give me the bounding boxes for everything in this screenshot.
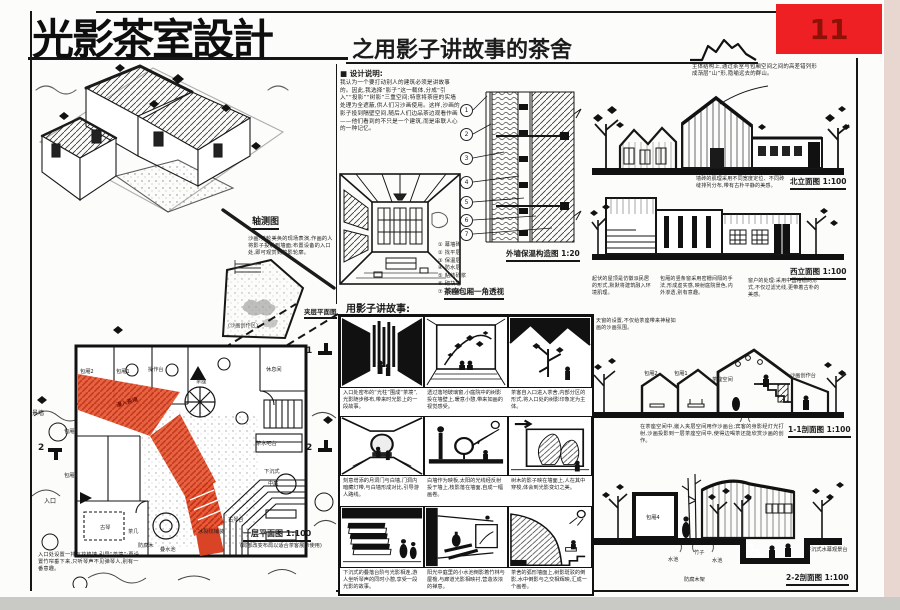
section-11-room-label: 茶座空间	[712, 376, 733, 383]
story-caption: 白墙作为映板,太阳的光线经反射投于墙上,枝影落在墙面,自成一幅画卷。	[424, 476, 508, 506]
story-sketch-reflection-diagram	[425, 417, 507, 475]
west-elevation-drawing	[590, 190, 856, 266]
plan-room-label: 包厢3	[64, 428, 78, 435]
section-22-label-item: 竹子	[694, 549, 704, 556]
legend-item: ⑦ 内饰面	[438, 289, 502, 297]
section-mark-2-left: 2	[38, 443, 44, 453]
story-caption: 树木的影子映在墙面上,人在其中穿梭,体会到光影变幻之美。	[508, 476, 592, 506]
section-11-room-label: 沙画创作台	[790, 372, 820, 379]
mountain-sketch-icon	[688, 36, 758, 62]
sun-icon	[491, 421, 499, 428]
scan-edge-bottom	[0, 597, 900, 610]
north-elevation-label: 北立面图 1:100	[790, 176, 846, 190]
legend-item: ② 找平层	[438, 250, 502, 258]
plan-side-label: 入口	[44, 496, 56, 505]
detail-callout: 2	[460, 128, 473, 141]
section-11-note-bottom: 在茶座空间中,嵌入夹层空间用作沙画台;宾客的身影经灯光打射,沙画投影到一层茶座空…	[640, 424, 786, 446]
design-notes-body: 我认为一个要打动别人的建筑必须是讲故事的。因此,我选择“影子”这一载体,分成“引…	[340, 80, 460, 134]
story-caption: 刻意增添的月洞门与白墙,门洞内暗藏灯带,与白墙形成对比,引导游人路线。	[340, 476, 424, 506]
section-mark-1: 1	[306, 346, 312, 356]
story-caption: 透过落地玻璃窗,小庭院中的树影投在墙壁上,暖意小憩,带来如画的视觉感受。	[424, 388, 508, 416]
story-caption: 茶舍的弧形墙面上,树影斑驳的倒影,水中倒影与之交相辉映,汇成一个画卷。	[508, 568, 592, 594]
story-sketch-curved-wall	[509, 507, 591, 567]
plan-bottom-label: 叠水池	[160, 546, 176, 553]
section-22-drawing	[590, 460, 856, 572]
section-22-label-item: 水池	[712, 557, 722, 564]
detail-callout: 7	[460, 228, 473, 241]
north-elevation-note-bottom: 墙砖的肌理采用不同宽度定位、不同砖缝排列分布,带有古朴平静的美感。	[696, 176, 786, 190]
detail-label: 外墙保温构造图 1:20	[506, 248, 580, 262]
sheet-subtitle: 之用影子讲故事的茶舍	[352, 32, 572, 64]
plan-room-label: 包厢4	[64, 472, 78, 479]
axon-label: 轴测图	[252, 214, 279, 230]
wall-detail-drawing	[456, 76, 588, 248]
story-caption: 茶客自入口进入茶舍,内部分区的形式,将入口处的树影印象定为主体。	[508, 388, 592, 416]
section-22-label-item: 下沉式水幕观景台	[806, 546, 852, 553]
scan-edge-right	[884, 0, 900, 610]
frame-right-line	[856, 58, 858, 592]
plan-room-label: 包厢1	[116, 368, 130, 375]
plan-title-note: (局部改变布局以适合茶客展示使用)	[240, 542, 336, 549]
story-caption: 下沉式的叠落台阶与光影相连,游人坐听琴声的同时小憩,享受一段光影的故事。	[340, 568, 424, 594]
story-sketch-courtyard-roofs	[509, 317, 591, 387]
north-elevation-drawing	[590, 84, 856, 188]
legend-item: ① 幕墙砖	[438, 242, 502, 250]
detail-callout: 6	[460, 214, 473, 227]
plan-room-label: 古琴台	[228, 516, 244, 523]
section-22-label-item: 防腐木架	[684, 576, 705, 583]
section-22-label-item: 包厢4	[646, 514, 660, 521]
story-sketch-light-columns	[341, 317, 423, 387]
plan-entry-note: 入口处设置一排瓦花格墙,引导“茶境”;再设置竹帘垂下来,只听琴声不见弹琴人,别有…	[38, 552, 142, 574]
story-sketch-moon-gate	[341, 417, 423, 475]
story-caption: 入口处密布的“光柱”围成“茶境”,光影随步移布,带来时光影上的一段故事。	[340, 388, 424, 416]
section-11-room-label: 包厢1	[674, 370, 688, 377]
detail-legend: ① 幕墙砖 ② 找平层 ③ 保温层 ④ 防水层 ⑤ 粘结砂浆 ⑥ 砌块墙 ⑦ 内…	[438, 242, 502, 297]
presentation-sheet: 光影茶室設計 之用影子讲故事的茶舍 11	[0, 0, 900, 610]
section-22-label-item: 水池	[668, 556, 678, 563]
plan-room-label: 包厢2	[80, 368, 94, 375]
story-caption: 阳光中庭里的小水池倒影着竹林与屋檐,与廊道光影相映衬,营造浓浓的禅意。	[424, 568, 508, 594]
detail-callout: 3	[460, 152, 473, 165]
story-sketch-window-tree	[425, 317, 507, 387]
plan-room-label: 操作台	[148, 366, 164, 373]
section-11-label: 1-1剖面图 1:100	[788, 424, 851, 438]
plan-bottom-label: 古琴	[100, 524, 110, 531]
plan-room-label: 茶水吧台	[256, 440, 277, 447]
plan-room-label: 休息间	[266, 366, 282, 373]
section-11-room-label: 包厢2	[644, 370, 658, 377]
plan-bottom-label: 防腐木	[138, 542, 154, 549]
storyboard-grid: 入口处密布的“光柱”围成“茶境”,光影随步移布,带来时光影上的一段故事。 透过落…	[338, 314, 594, 596]
legend-item: ⑥ 砌块墙	[438, 281, 502, 289]
sheet-number-badge: 11	[776, 4, 882, 54]
section-22-label: 2-2剖面图 1:100	[786, 572, 849, 586]
legend-item: ⑤ 粘结砂浆	[438, 273, 502, 281]
moon-gate-icon	[371, 435, 392, 454]
story-sketch-tree-shadow-wall	[509, 417, 591, 475]
arrow-icon	[515, 421, 531, 428]
west-elevation-note: 窗户的处理:采用中国格栅的形式,不仅过滤光线,更带着古朴的美感。	[748, 278, 822, 299]
sheet-title: 光影茶室設計	[32, 6, 348, 67]
plan-room-label: 下沉式	[264, 468, 280, 475]
plan-title: 一层平面图 1:100	[243, 528, 311, 542]
plan-room-label: 茶座	[196, 378, 206, 385]
section-mark-2: 2	[306, 443, 312, 453]
detail-callout: 4	[460, 176, 473, 189]
west-elevation-note: 起伏的屋顶是仿徽派民居的形式,默默将建筑融入环境肌理。	[592, 276, 654, 297]
detail-callout: 5	[460, 196, 473, 209]
story-sketch-courtyard-pool	[425, 507, 507, 567]
axon-note: 沙画:美轮美奂的现场表演,作画的人将影子投射到墙面;布置设备的入口处,即可观赏到…	[248, 236, 336, 258]
detail-callout: 1	[460, 104, 473, 117]
section-11-note-top: 天窗的设置,不仅给茶座带来神秘如画的沙画氛围。	[596, 318, 678, 332]
sun-icon	[577, 511, 585, 518]
plan-room-label: 中庭	[268, 480, 278, 487]
story-sketch-shadow-stairs	[341, 507, 423, 567]
west-elevation-note: 包厢的竖条窗采用密栅间隔的手法,形成虚实感,映射庭院景色,内外渗透,别有意趣。	[660, 276, 738, 297]
plan-bottom-label: 茶几	[128, 528, 138, 535]
sheet-number: 11	[810, 13, 849, 46]
design-notes-heading: ■ 设计说明:	[340, 68, 383, 79]
north-elevation-note-top: 主体结构上,通过茶室与包厢空间之间的高差错列形成渐层“山”形,隐喻远去的群山。	[692, 64, 820, 79]
plan-bottom-label: 冰裂纹铺装	[198, 528, 224, 535]
plan-side-label: 景墙	[32, 408, 44, 417]
